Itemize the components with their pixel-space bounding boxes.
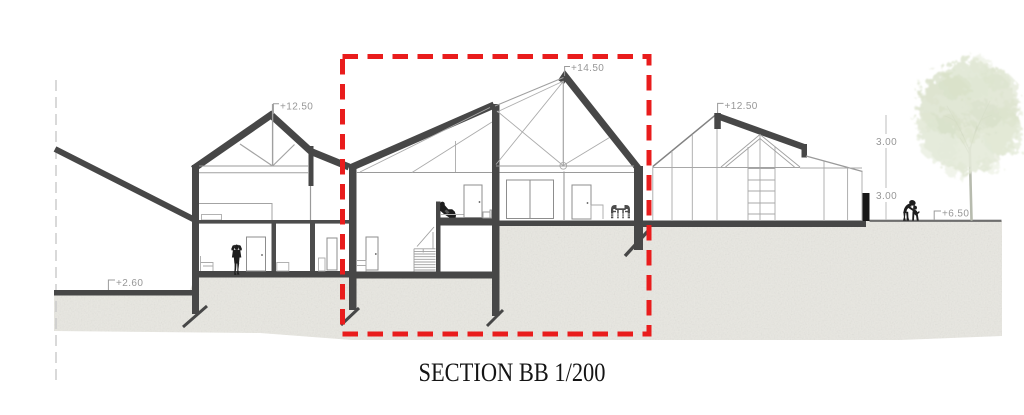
svg-text:+12.50: +12.50 xyxy=(280,101,313,112)
svg-text:3.00: 3.00 xyxy=(876,191,897,202)
svg-text:+6.50: +6.50 xyxy=(942,209,969,220)
svg-text:SECTION BB 1/200: SECTION BB 1/200 xyxy=(419,358,606,387)
svg-text:+14.50: +14.50 xyxy=(571,63,604,74)
svg-text:+12.50: +12.50 xyxy=(725,101,758,112)
svg-text:+2.60: +2.60 xyxy=(116,278,143,289)
svg-text:3.00: 3.00 xyxy=(876,137,897,148)
